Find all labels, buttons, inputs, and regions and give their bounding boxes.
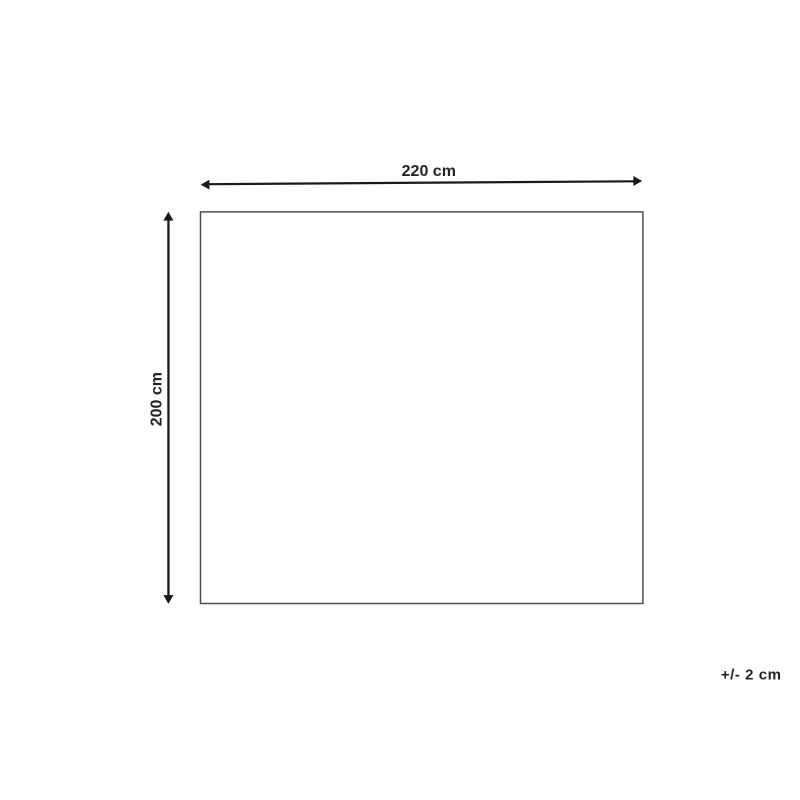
svg-text:220 cm: 220 cm — [402, 163, 456, 180]
svg-text:+/- 2 cm: +/- 2 cm — [721, 667, 782, 684]
svg-text:200 cm: 200 cm — [149, 372, 166, 426]
